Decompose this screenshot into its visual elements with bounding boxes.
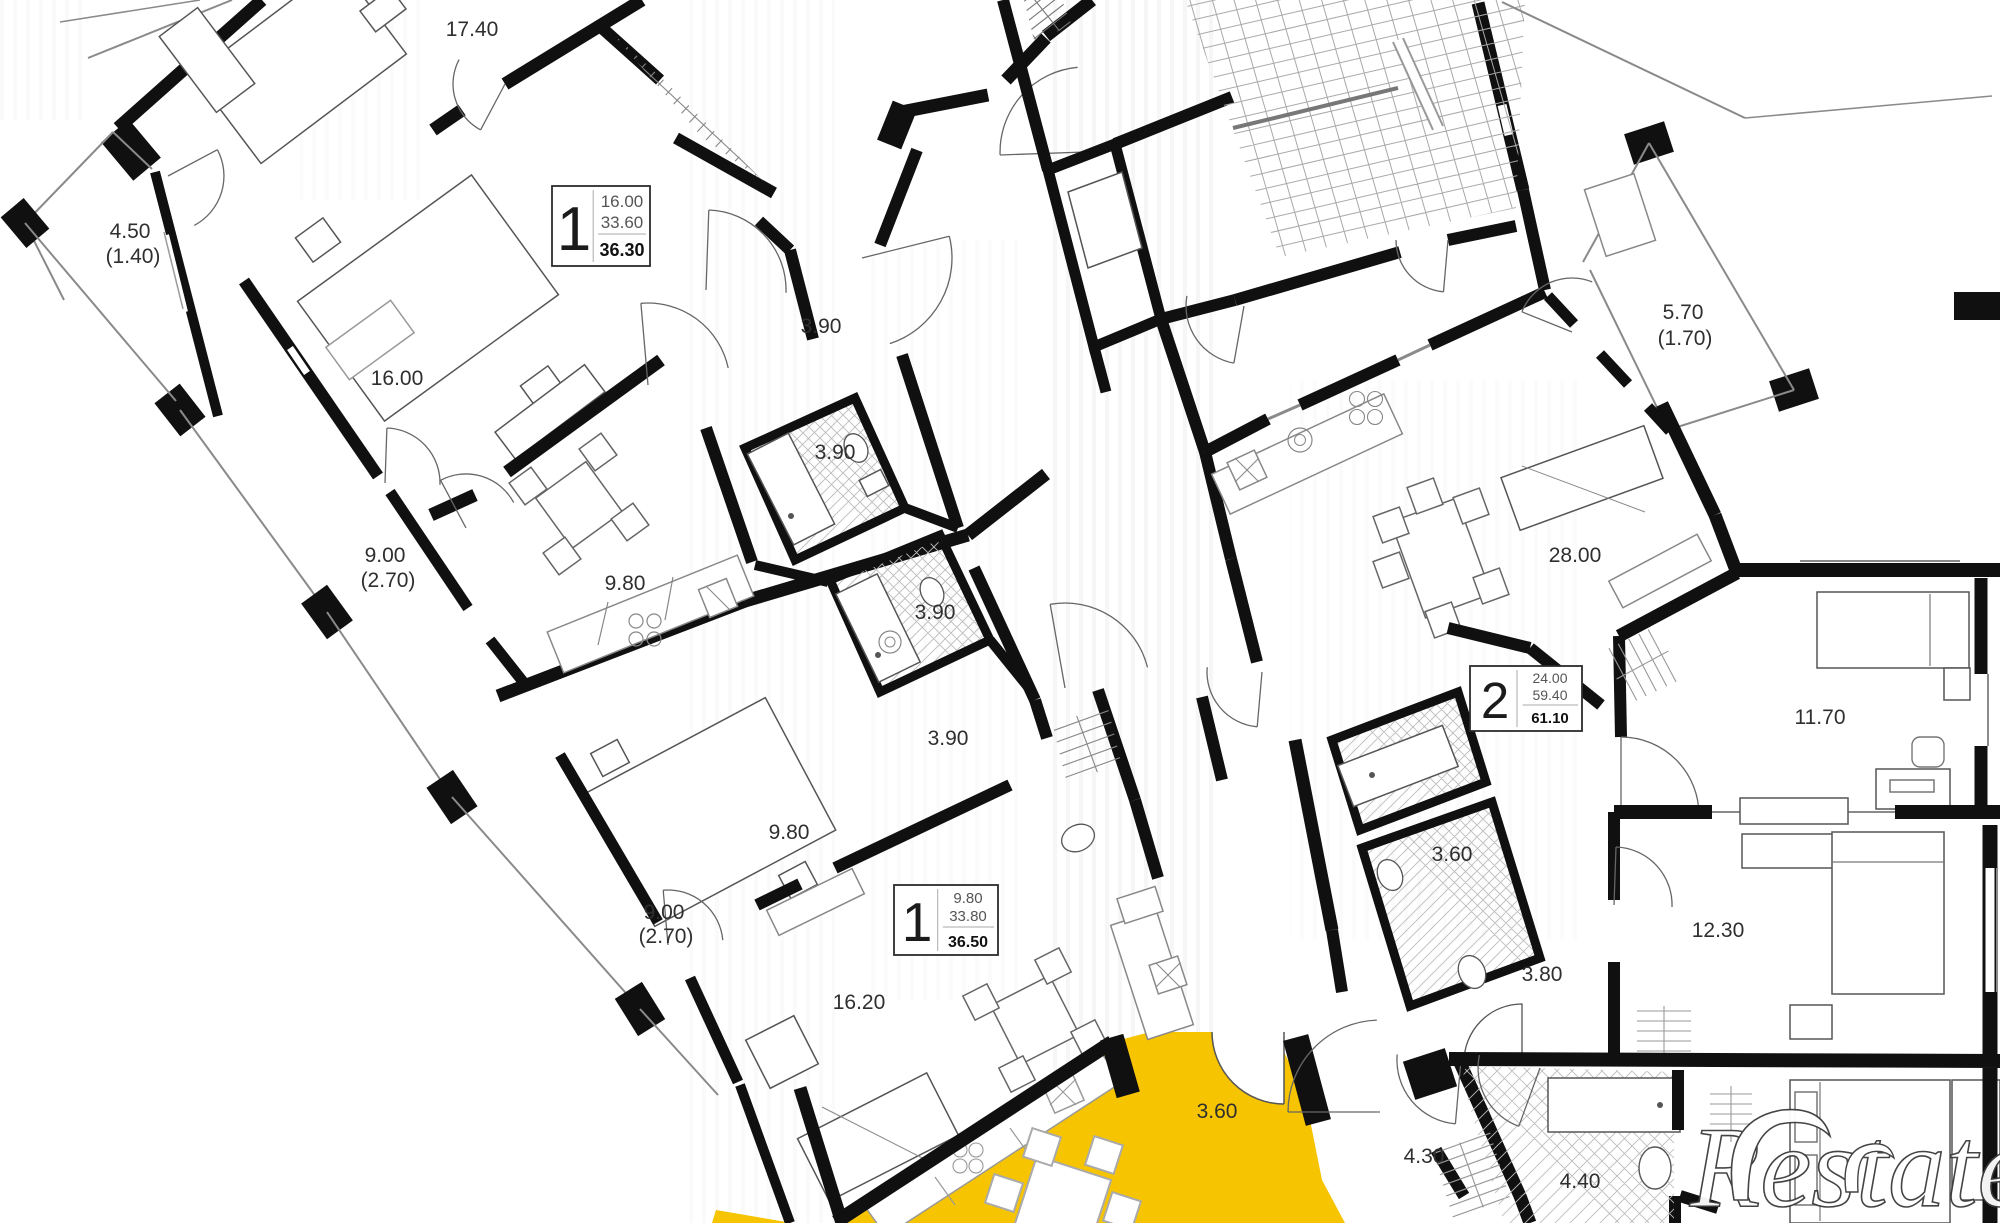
svg-text:59.40: 59.40 — [1532, 687, 1567, 703]
svg-text:28.00: 28.00 — [1549, 544, 1602, 567]
svg-text:3.60: 3.60 — [1432, 843, 1473, 866]
svg-text:(2.70): (2.70) — [361, 569, 416, 592]
svg-text:4.50: 4.50 — [110, 220, 151, 243]
svg-text:2: 2 — [1481, 672, 1509, 729]
svg-text:(1.70): (1.70) — [1658, 327, 1713, 350]
svg-text:(1.40): (1.40) — [106, 245, 161, 268]
svg-text:24.00: 24.00 — [1532, 670, 1567, 686]
svg-text:5.70: 5.70 — [1663, 301, 1704, 324]
svg-text:33.80: 33.80 — [949, 908, 987, 925]
svg-text:9.00: 9.00 — [644, 901, 685, 924]
svg-text:61.10: 61.10 — [1531, 710, 1569, 727]
svg-text:3.90: 3.90 — [815, 441, 856, 464]
svg-text:17.40: 17.40 — [446, 18, 499, 41]
svg-text:3.80: 3.80 — [1522, 963, 1563, 986]
svg-text:3.90: 3.90 — [801, 315, 842, 338]
svg-text:36.30: 36.30 — [599, 240, 644, 260]
svg-text:9.80: 9.80 — [953, 890, 982, 907]
svg-text:16.00: 16.00 — [601, 192, 644, 211]
svg-text:3.90: 3.90 — [928, 727, 969, 750]
svg-text:9.80: 9.80 — [605, 572, 646, 595]
svg-text:36.50: 36.50 — [948, 934, 988, 951]
svg-text:4.30: 4.30 — [1404, 1145, 1445, 1168]
svg-text:1: 1 — [902, 891, 933, 953]
svg-text:9.80: 9.80 — [769, 821, 810, 844]
svg-text:3.60: 3.60 — [1197, 1100, 1238, 1123]
svg-text:11.70: 11.70 — [1795, 706, 1846, 729]
svg-text:1: 1 — [557, 195, 591, 264]
svg-text:9.00: 9.00 — [365, 544, 406, 567]
svg-text:16.20: 16.20 — [833, 991, 886, 1014]
svg-text:3.90: 3.90 — [915, 601, 956, 624]
svg-text:33.60: 33.60 — [601, 213, 644, 232]
svg-text:12.30: 12.30 — [1692, 919, 1745, 942]
svg-text:4.40: 4.40 — [1560, 1170, 1601, 1193]
svg-text:16.00: 16.00 — [371, 367, 424, 390]
svg-text:(2.70): (2.70) — [639, 925, 694, 948]
